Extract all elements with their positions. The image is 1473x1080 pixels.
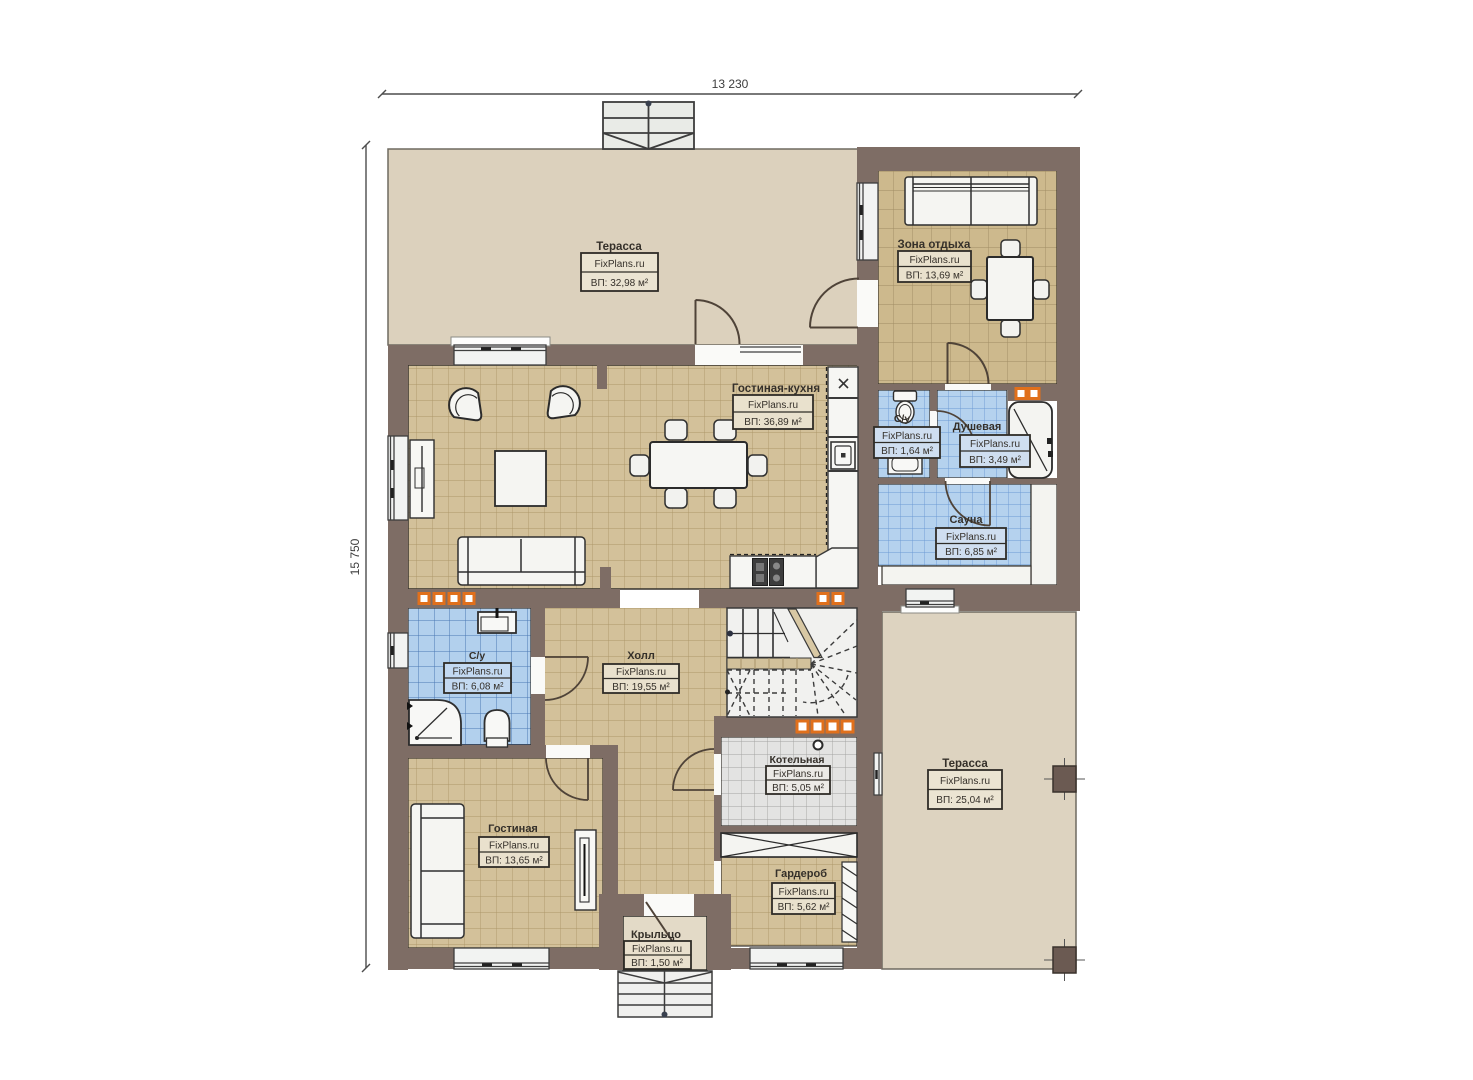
svg-text:FixPlans.ru: FixPlans.ru: [882, 431, 932, 442]
svg-text:Терасса: Терасса: [942, 758, 988, 770]
svg-text:FixPlans.ru: FixPlans.ru: [778, 887, 828, 898]
svg-text:ВП: 6,85 м²: ВП: 6,85 м²: [945, 547, 998, 558]
svg-text:Сауна: Сауна: [949, 514, 983, 526]
svg-text:ВП: 32,98 м²: ВП: 32,98 м²: [591, 278, 649, 289]
svg-text:FixPlans.ru: FixPlans.ru: [940, 776, 990, 787]
svg-text:ВП: 1,50 м²: ВП: 1,50 м²: [631, 958, 684, 969]
svg-text:ВП: 5,62 м²: ВП: 5,62 м²: [778, 902, 831, 913]
svg-text:ВП: 13,69 м²: ВП: 13,69 м²: [906, 271, 964, 282]
svg-text:FixPlans.ru: FixPlans.ru: [773, 769, 823, 780]
svg-text:С/у: С/у: [469, 650, 486, 662]
svg-text:Гостиная-кухня: Гостиная-кухня: [732, 383, 820, 395]
svg-text:Холл: Холл: [627, 650, 655, 662]
svg-text:ВП: 5,05 м²: ВП: 5,05 м²: [772, 783, 825, 794]
svg-text:FixPlans.ru: FixPlans.ru: [489, 841, 539, 852]
svg-text:FixPlans.ru: FixPlans.ru: [909, 255, 959, 266]
svg-text:FixPlans.ru: FixPlans.ru: [616, 667, 666, 678]
svg-text:ВП: 13,65 м²: ВП: 13,65 м²: [485, 856, 543, 867]
svg-text:ВП: 36,89 м²: ВП: 36,89 м²: [744, 417, 802, 428]
svg-text:FixPlans.ru: FixPlans.ru: [632, 944, 682, 955]
svg-text:Крыльцо: Крыльцо: [631, 929, 681, 941]
svg-text:FixPlans.ru: FixPlans.ru: [452, 667, 502, 678]
svg-text:FixPlans.ru: FixPlans.ru: [748, 400, 798, 411]
svg-text:Душевая: Душевая: [953, 421, 1002, 433]
svg-text:15 750: 15 750: [348, 538, 362, 575]
svg-text:ВП: 3,49 м²: ВП: 3,49 м²: [969, 455, 1022, 466]
svg-text:Зона отдыха: Зона отдыха: [898, 239, 972, 251]
svg-text:13 230: 13 230: [712, 77, 749, 91]
svg-text:С/у: С/у: [894, 413, 911, 425]
svg-text:ВП: 25,04 м²: ВП: 25,04 м²: [936, 795, 994, 806]
svg-text:Гостиная: Гостиная: [488, 823, 538, 835]
svg-text:FixPlans.ru: FixPlans.ru: [594, 259, 644, 270]
svg-text:ВП: 6,08 м²: ВП: 6,08 м²: [452, 682, 505, 693]
svg-text:ВП: 19,55 м²: ВП: 19,55 м²: [612, 682, 670, 693]
svg-text:ВП: 1,64 м²: ВП: 1,64 м²: [881, 446, 934, 457]
svg-text:Терасса: Терасса: [596, 241, 642, 253]
svg-text:Гардероб: Гардероб: [775, 868, 827, 880]
svg-text:FixPlans.ru: FixPlans.ru: [970, 439, 1020, 450]
svg-text:Котельная: Котельная: [770, 754, 825, 766]
svg-text:FixPlans.ru: FixPlans.ru: [946, 532, 996, 543]
